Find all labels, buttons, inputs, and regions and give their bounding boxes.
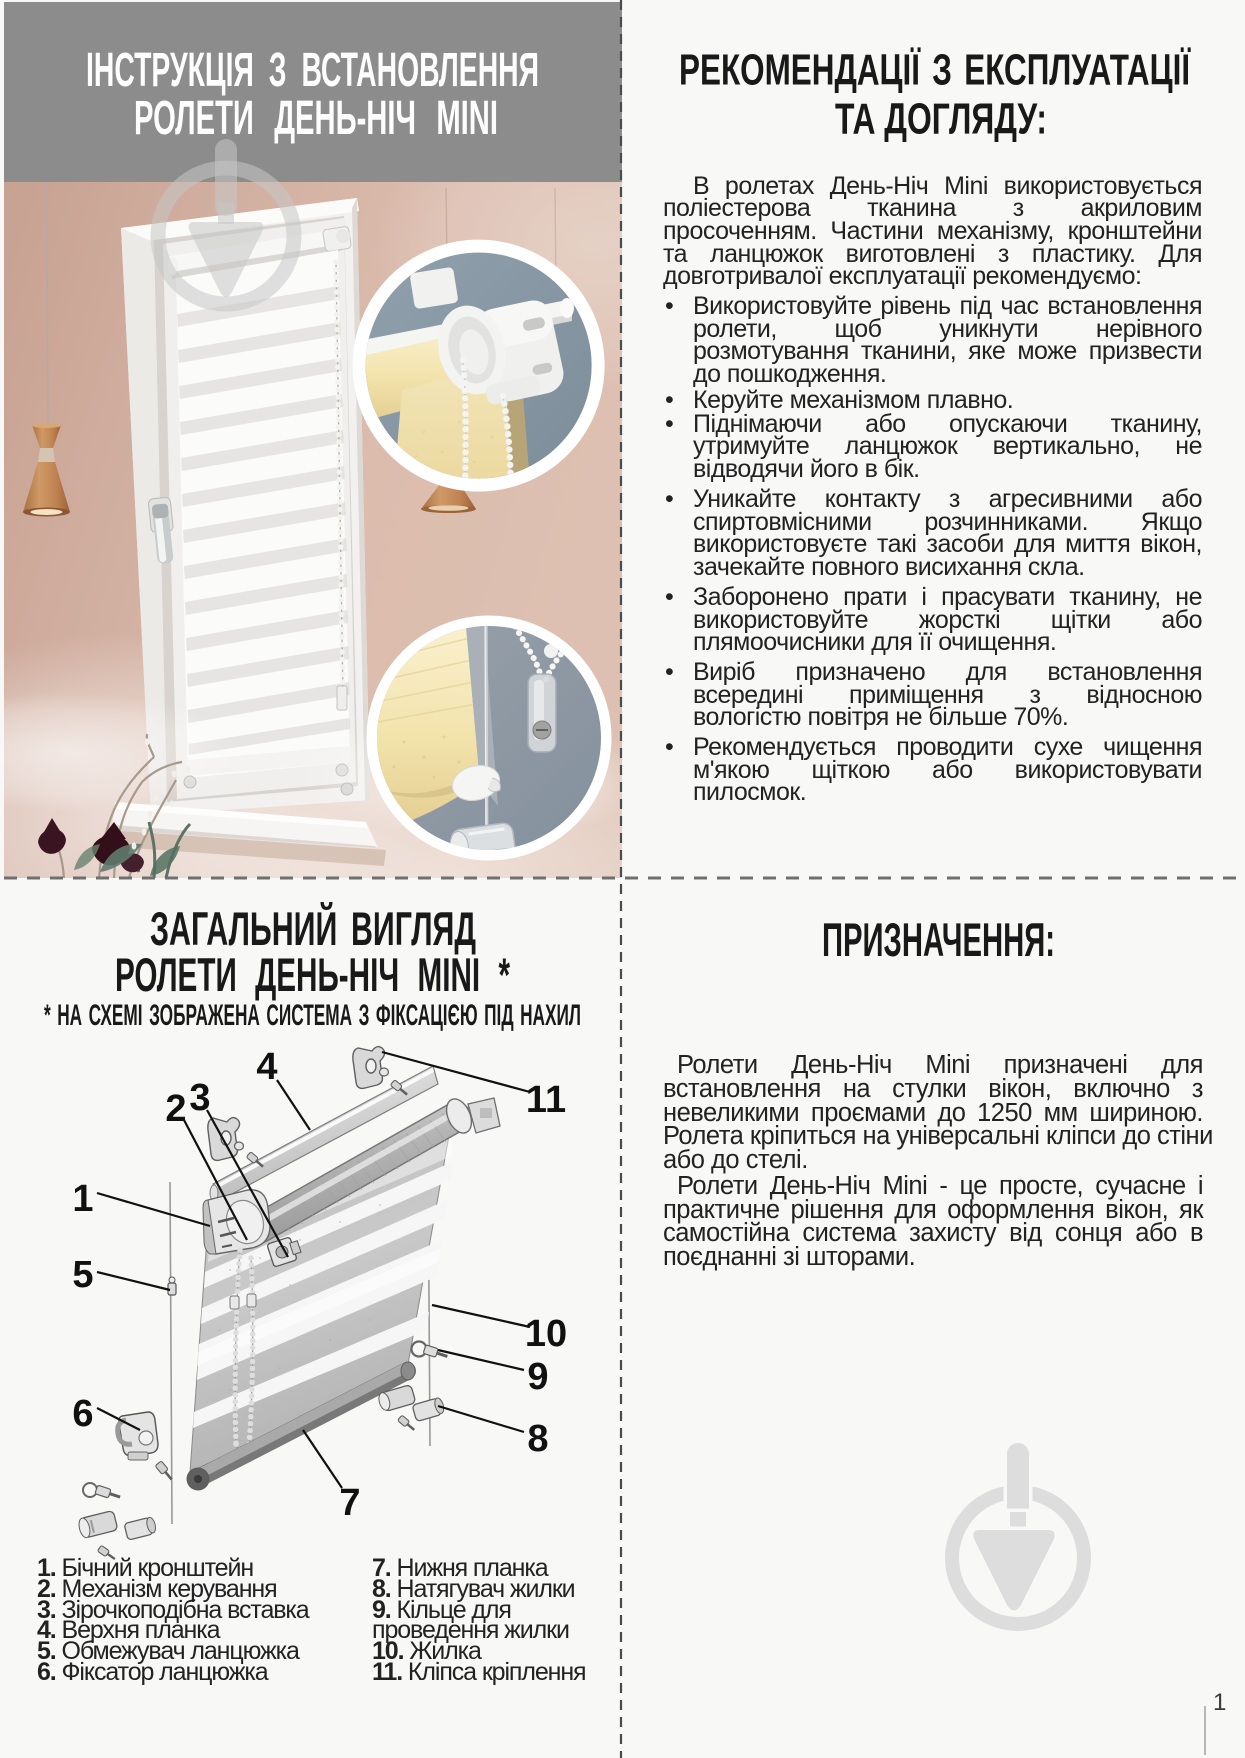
svg-text:1: 1 <box>72 1178 93 1220</box>
svg-text:ІНСТРУКЦІЯ З ВСТАНОВЛЕННЯ: ІНСТРУКЦІЯ З ВСТАНОВЛЕННЯ <box>86 44 539 97</box>
svg-text:8: 8 <box>527 1418 548 1460</box>
svg-text:6: 6 <box>72 1393 93 1435</box>
svg-text:9: 9 <box>527 1356 548 1398</box>
svg-text:ПРИЗНАЧЕННЯ:: ПРИЗНАЧЕННЯ: <box>822 913 1055 966</box>
svg-text:10: 10 <box>525 1313 567 1355</box>
svg-text:2: 2 <box>165 1088 186 1130</box>
svg-text:3: 3 <box>189 1077 210 1119</box>
svg-text:5: 5 <box>72 1254 93 1296</box>
svg-text:РЕКОМЕНДАЦІЇ З ЕКСПЛУАТАЦІЇ: РЕКОМЕНДАЦІЇ З ЕКСПЛУАТАЦІЇ <box>679 46 1191 95</box>
svg-text:11: 11 <box>526 1079 566 1121</box>
svg-text:* НА СХЕМІ ЗОБРАЖЕНА СИСТЕМА З: * НА СХЕМІ ЗОБРАЖЕНА СИСТЕМА З ФІКСАЦІЄЮ… <box>44 999 581 1032</box>
svg-text:4: 4 <box>256 1046 277 1088</box>
svg-text:ТА ДОГЛЯДУ:: ТА ДОГЛЯДУ: <box>835 95 1047 144</box>
svg-text:РОЛЕТИ ДЕНЬ-НІЧ MINI *: РОЛЕТИ ДЕНЬ-НІЧ MINI * <box>115 948 510 1001</box>
svg-text:7: 7 <box>339 1482 360 1524</box>
